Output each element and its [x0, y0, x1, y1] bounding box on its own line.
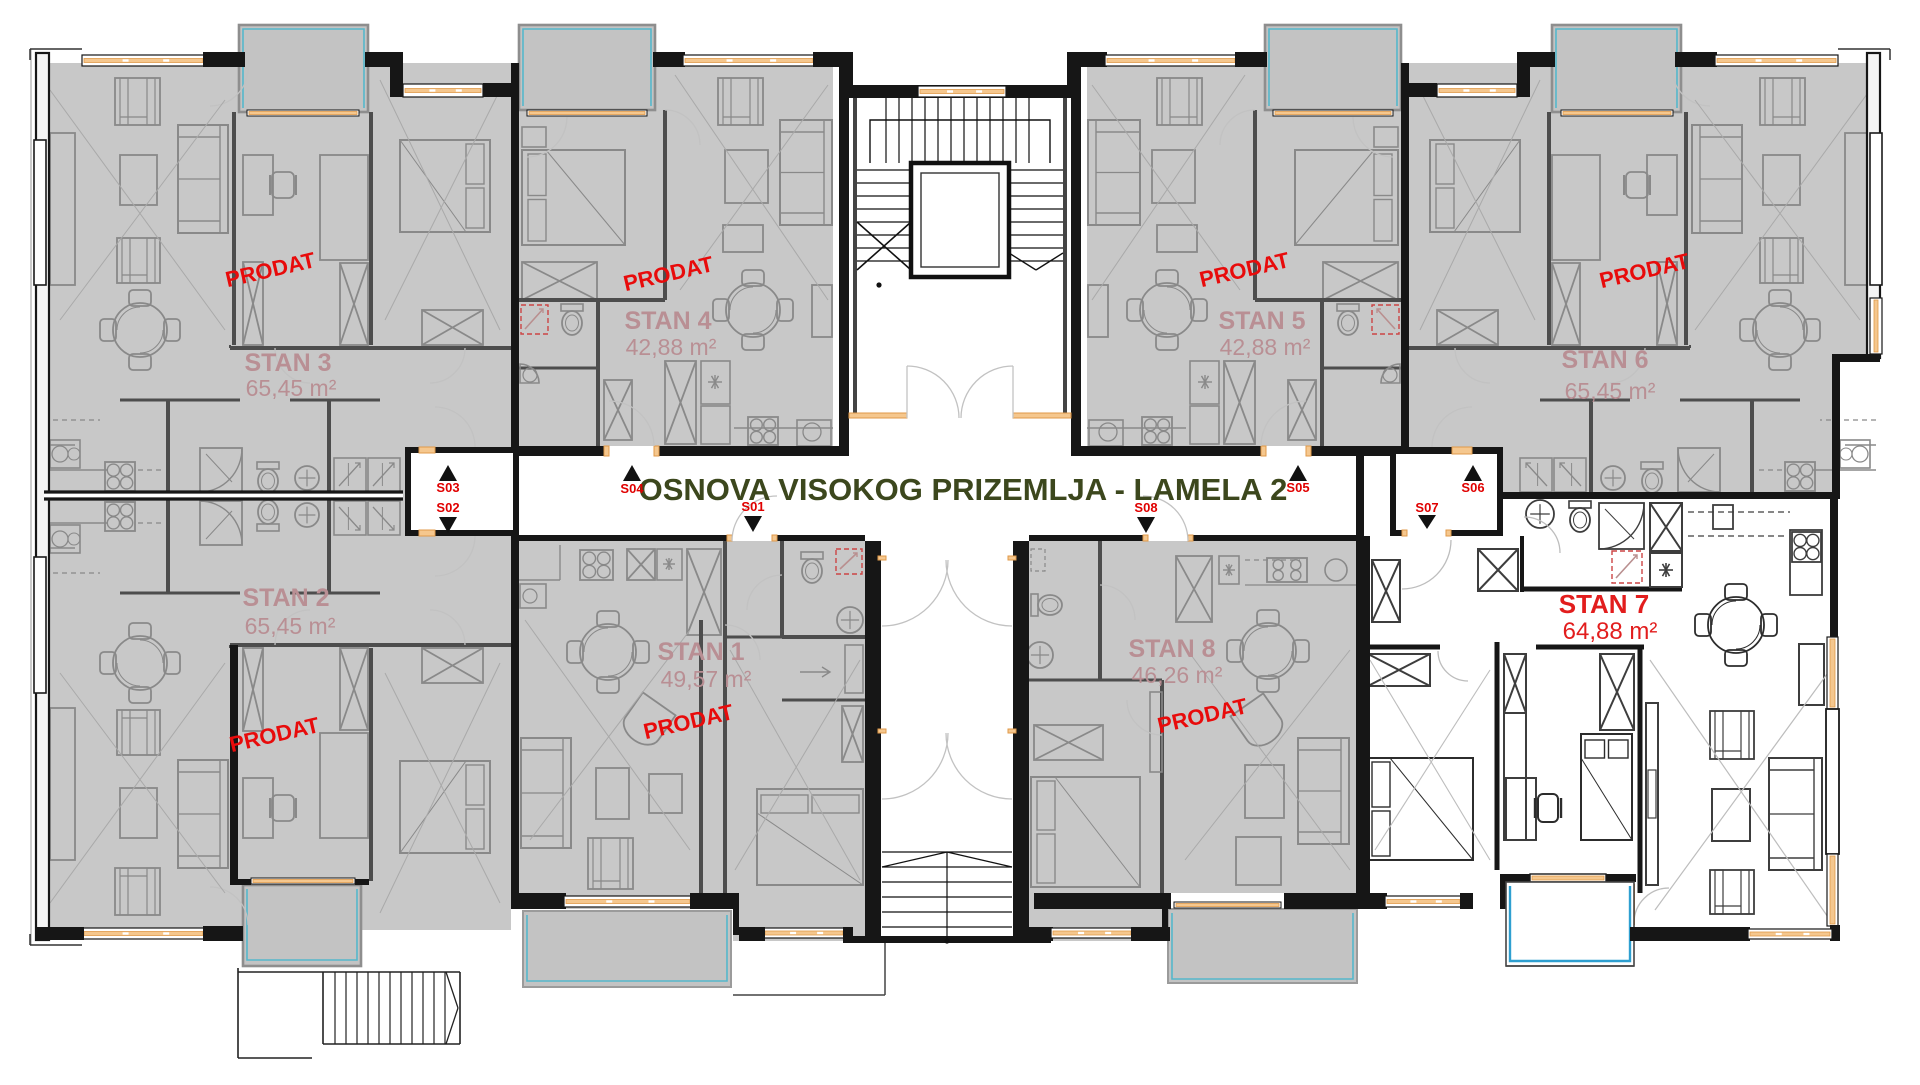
svg-text:65,45 m²: 65,45 m²	[1565, 378, 1656, 404]
svg-text:65,45 m²: 65,45 m²	[245, 613, 336, 639]
svg-text:STAN 3: STAN 3	[244, 349, 331, 377]
svg-text:OSNOVA VISOKOG PRIZEMLJA - LAM: OSNOVA VISOKOG PRIZEMLJA - LAMELA 2	[639, 472, 1288, 507]
svg-text:STAN 5: STAN 5	[1218, 307, 1305, 335]
svg-text:S07: S07	[1415, 500, 1438, 515]
svg-text:65,45 m²: 65,45 m²	[246, 375, 337, 401]
svg-text:STAN 4: STAN 4	[624, 307, 711, 335]
svg-text:S03: S03	[436, 480, 459, 495]
svg-text:STAN 6: STAN 6	[1561, 346, 1648, 374]
svg-text:46,26 m²: 46,26 m²	[1132, 662, 1223, 688]
svg-text:S01: S01	[741, 499, 764, 514]
svg-text:STAN 7: STAN 7	[1559, 589, 1650, 619]
svg-text:S02: S02	[436, 500, 459, 515]
svg-text:49,57 m²: 49,57 m²	[661, 666, 752, 692]
svg-text:S06: S06	[1461, 480, 1484, 495]
svg-text:42,88 m²: 42,88 m²	[1220, 334, 1311, 360]
svg-text:S08: S08	[1134, 500, 1157, 515]
svg-text:42,88 m²: 42,88 m²	[626, 334, 717, 360]
svg-text:S05: S05	[1286, 480, 1309, 495]
svg-text:STAN 8: STAN 8	[1128, 635, 1215, 663]
svg-text:S04: S04	[620, 481, 644, 496]
svg-text:STAN 1: STAN 1	[657, 638, 744, 666]
svg-text:STAN 2: STAN 2	[242, 584, 329, 612]
svg-text:64,88 m²: 64,88 m²	[1563, 618, 1658, 645]
